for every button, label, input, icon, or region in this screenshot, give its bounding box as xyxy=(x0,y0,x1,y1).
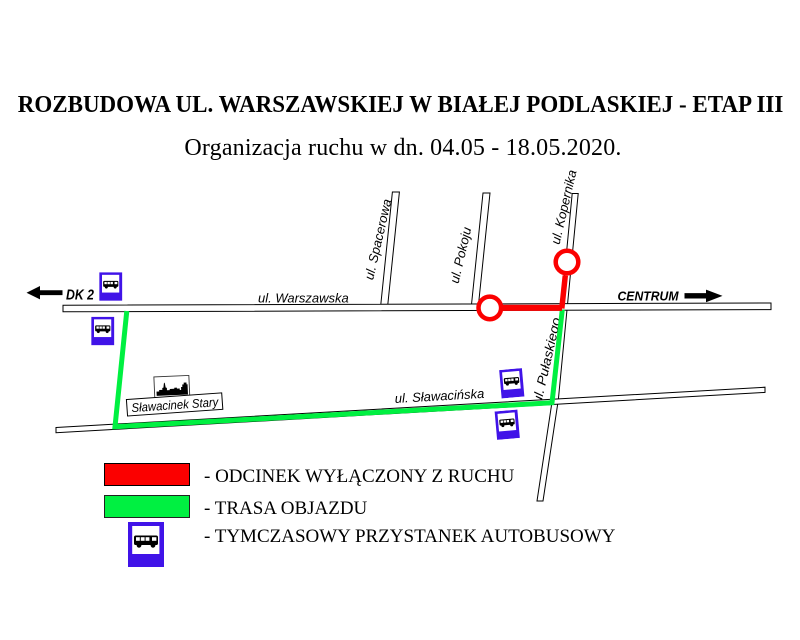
svg-text:CENTRUM: CENTRUM xyxy=(618,289,680,304)
svg-text:DK 2: DK 2 xyxy=(66,287,95,304)
svg-text:ul. Pokoju: ul. Pokoju xyxy=(447,226,474,285)
svg-text:ul. Warszawska: ul. Warszawska xyxy=(258,291,349,306)
svg-text:ul. Sławacińska: ul. Sławacińska xyxy=(394,386,484,406)
